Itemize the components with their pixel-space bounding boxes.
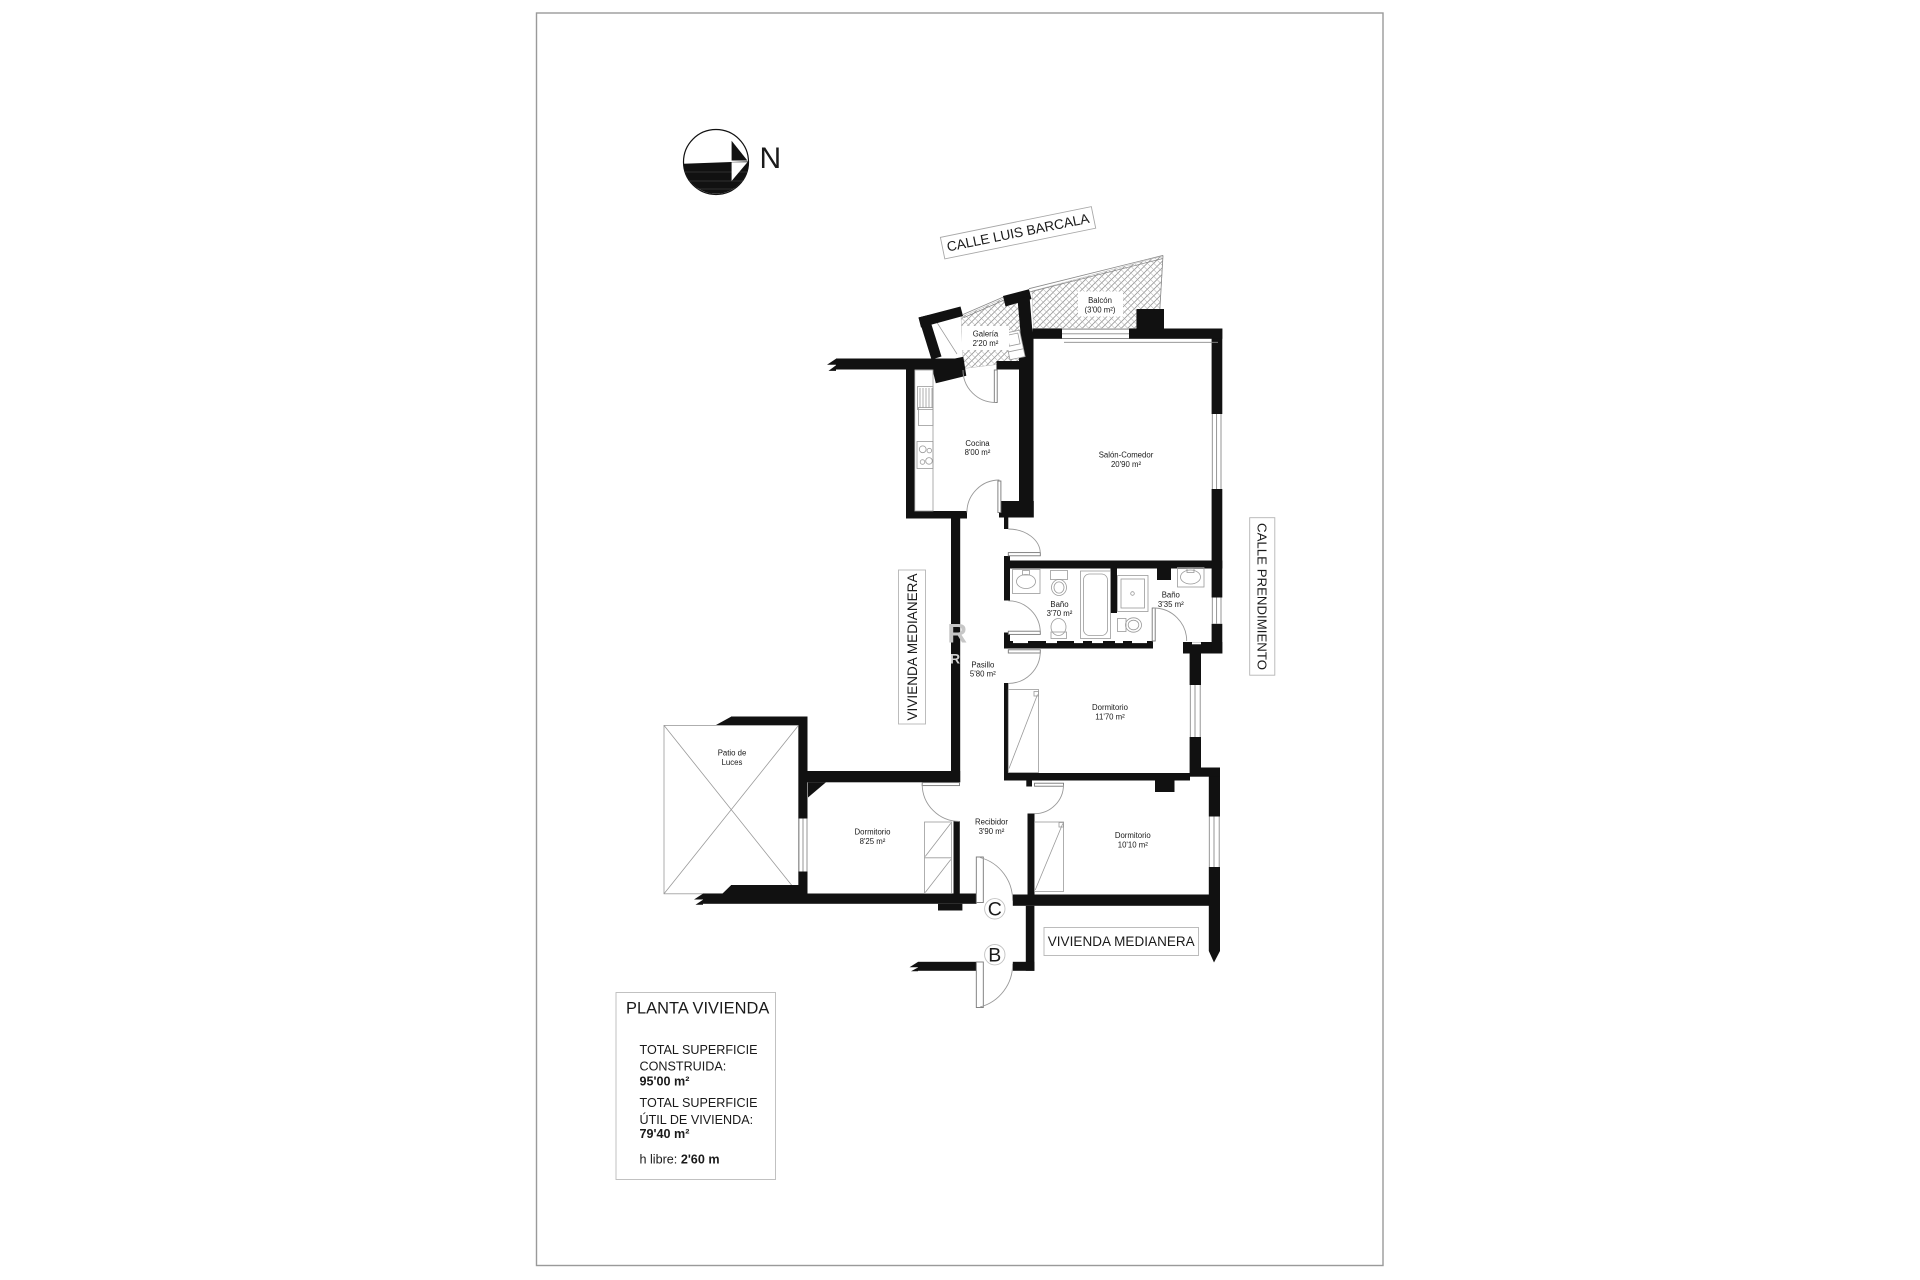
svg-text:R: R — [950, 651, 960, 667]
svg-text:Dormitorio: Dormitorio — [1092, 703, 1129, 712]
svg-text:Baño: Baño — [1162, 591, 1181, 600]
svg-text:2'20 m²: 2'20 m² — [973, 339, 999, 348]
svg-text:Patio de: Patio de — [718, 748, 747, 757]
svg-text:10'10 m²: 10'10 m² — [1118, 841, 1148, 850]
svg-text:Salón-Comedor: Salón-Comedor — [1099, 451, 1154, 460]
svg-text:R: R — [948, 619, 968, 649]
svg-text:CALLE PRENDIMIENTO: CALLE PRENDIMIENTO — [1254, 523, 1269, 670]
svg-text:Cocina: Cocina — [965, 439, 990, 448]
svg-text:Baño: Baño — [1050, 600, 1069, 609]
svg-text:Luces: Luces — [722, 758, 743, 767]
svg-text:Recibidor: Recibidor — [975, 818, 1008, 827]
svg-text:Balcón: Balcón — [1088, 296, 1112, 305]
svg-text:20'90 m²: 20'90 m² — [1111, 460, 1141, 469]
svg-text:3'70 m²: 3'70 m² — [1047, 609, 1073, 618]
svg-text:Dormitorio: Dormitorio — [1115, 831, 1152, 840]
svg-text:Pasillo: Pasillo — [971, 660, 995, 669]
svg-text:3'35 m²: 3'35 m² — [1158, 600, 1184, 609]
svg-text:11'70 m²: 11'70 m² — [1095, 713, 1125, 722]
svg-text:Galería: Galería — [973, 329, 999, 338]
svg-text:VIVIENDA MEDIANERA: VIVIENDA MEDIANERA — [1048, 934, 1195, 949]
svg-text:79'40 m²: 79'40 m² — [640, 1127, 690, 1141]
svg-text:PLANTA VIVIENDA: PLANTA VIVIENDA — [626, 1000, 769, 1018]
svg-text:(3'00 m²): (3'00 m²) — [1085, 306, 1116, 315]
svg-text:3'90 m²: 3'90 m² — [979, 827, 1005, 836]
svg-text:5'80 m²: 5'80 m² — [970, 670, 996, 679]
svg-text:Dormitorio: Dormitorio — [855, 828, 892, 837]
svg-text:ÚTIL DE VIVIENDA:: ÚTIL DE VIVIENDA: — [640, 1112, 754, 1127]
svg-text:B: B — [988, 945, 1001, 967]
svg-text:VIVIENDA MEDIANERA: VIVIENDA MEDIANERA — [905, 574, 920, 721]
svg-text:8'00 m²: 8'00 m² — [965, 448, 991, 457]
svg-text:h libre: 2'60 m: h libre: 2'60 m — [640, 1153, 720, 1167]
svg-text:8'25 m²: 8'25 m² — [860, 837, 886, 846]
svg-text:TOTAL SUPERFICIE: TOTAL SUPERFICIE — [640, 1043, 758, 1057]
svg-text:CONSTRUIDA:: CONSTRUIDA: — [640, 1060, 727, 1074]
svg-text:C: C — [988, 899, 1002, 921]
svg-text:TOTAL SUPERFICIE: TOTAL SUPERFICIE — [640, 1096, 758, 1110]
svg-text:N: N — [760, 142, 782, 175]
svg-text:95'00 m²: 95'00 m² — [640, 1075, 690, 1089]
